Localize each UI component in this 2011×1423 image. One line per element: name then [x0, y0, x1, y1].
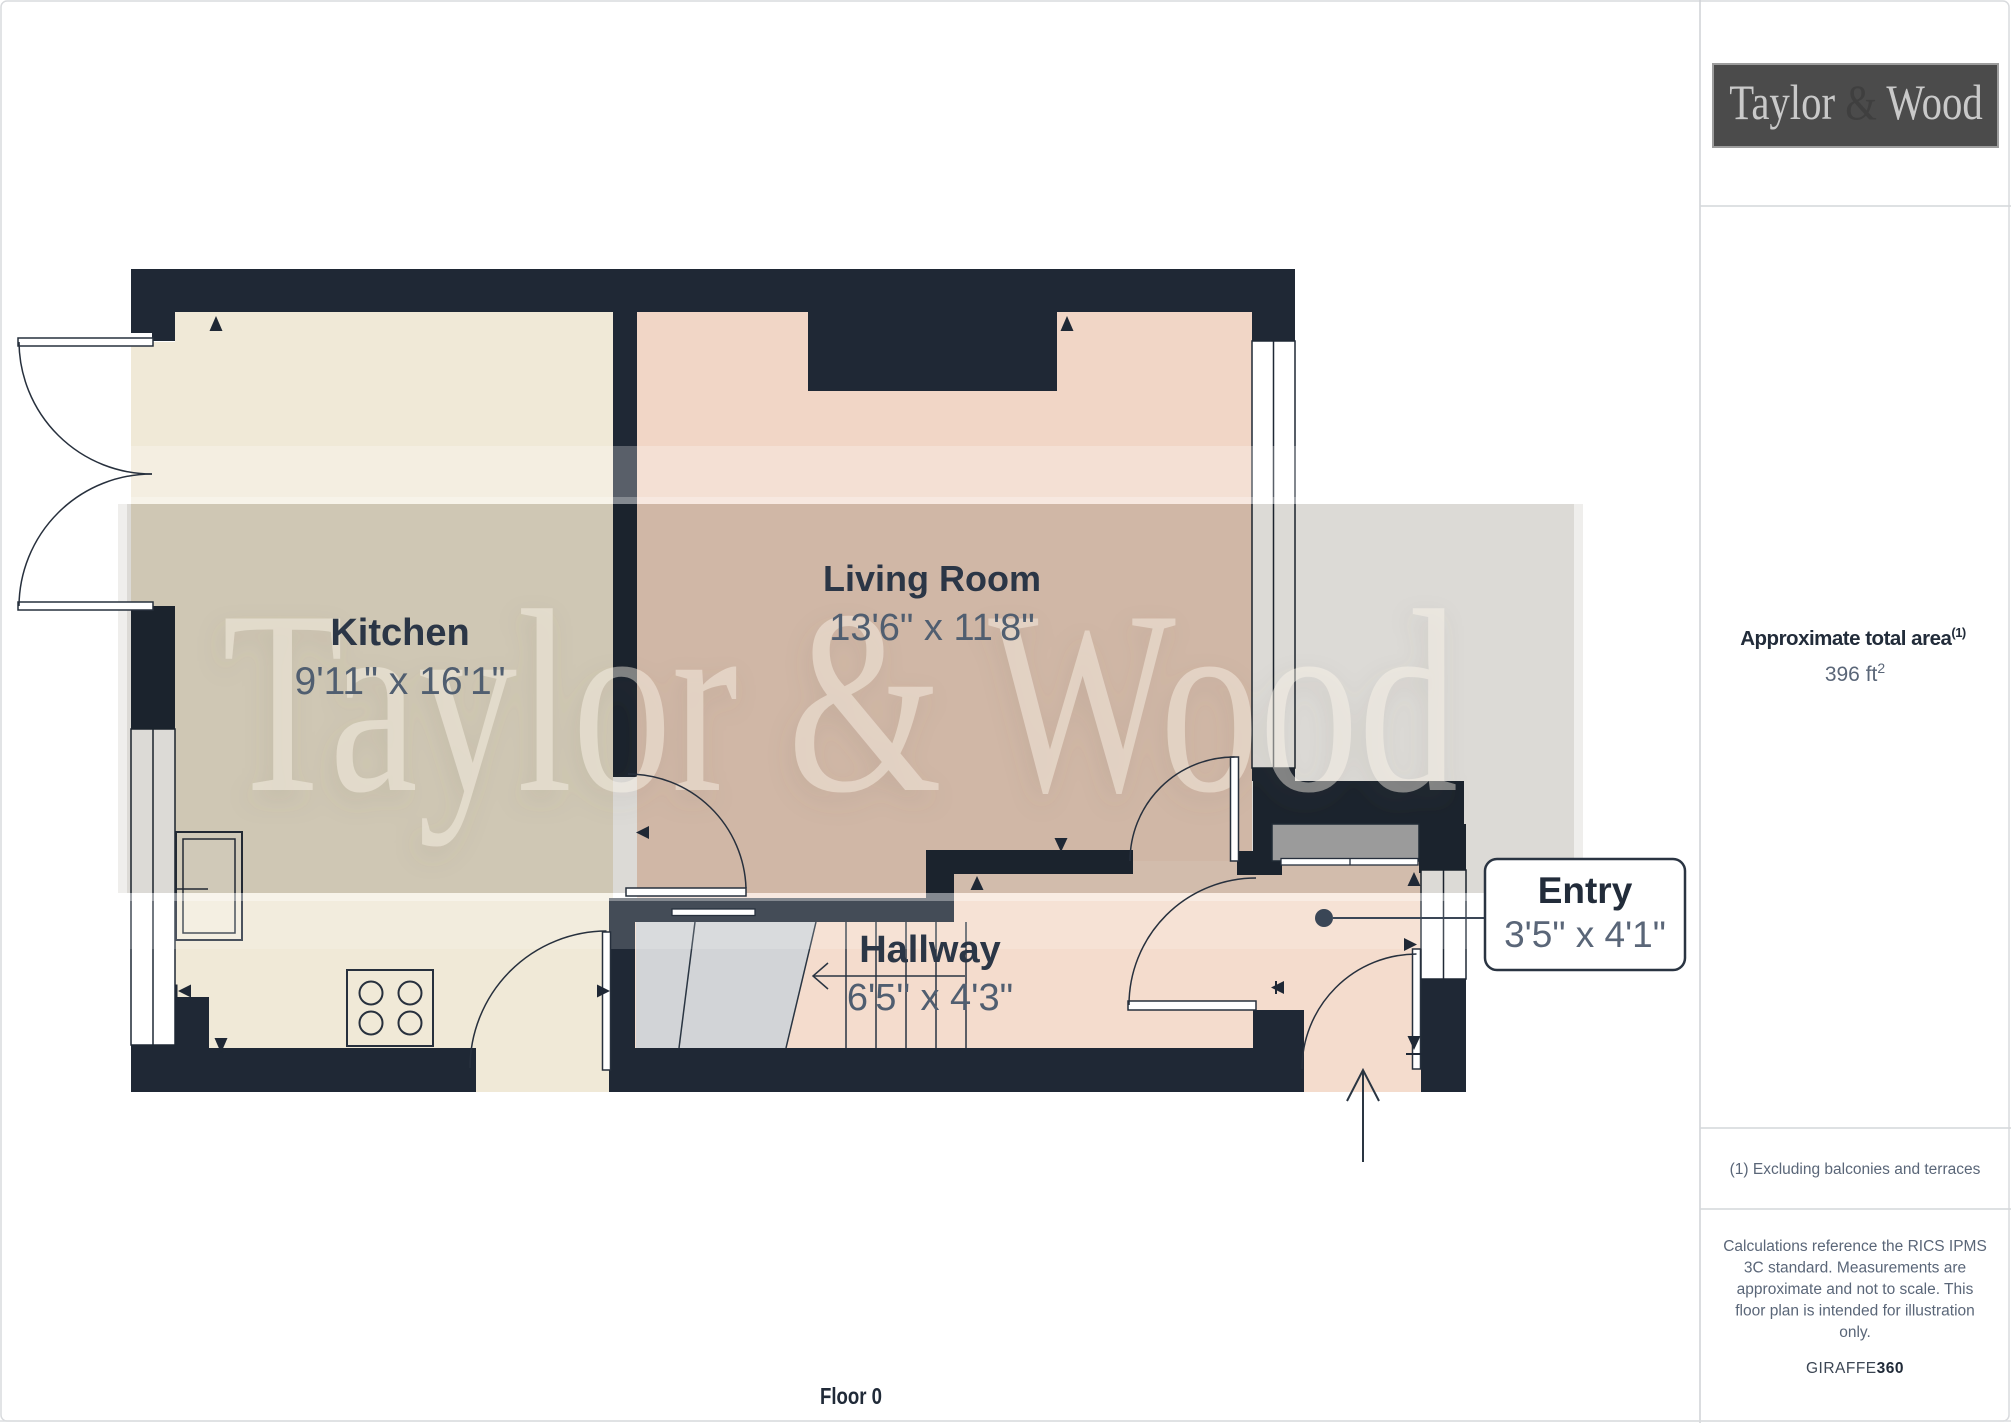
svg-text:Living Room: Living Room — [823, 558, 1041, 599]
svg-text:9'11" x 16'1": 9'11" x 16'1" — [295, 660, 506, 703]
svg-text:Hallway: Hallway — [859, 929, 1001, 971]
svg-text:floor plan is intended for ill: floor plan is intended for illustration — [1735, 1303, 1975, 1320]
svg-text:3C standard. Measurements are: 3C standard. Measurements are — [1744, 1260, 1966, 1277]
svg-text:Calculations reference the RIC: Calculations reference the RICS IPMS — [1723, 1238, 1987, 1255]
svg-text:Kitchen: Kitchen — [330, 612, 469, 654]
svg-text:3'5" x 4'1": 3'5" x 4'1" — [1504, 914, 1666, 955]
svg-text:396 ft2: 396 ft2 — [1825, 660, 1886, 686]
svg-text:13'6" x 11'8": 13'6" x 11'8" — [829, 607, 1035, 649]
svg-text:Entry: Entry — [1538, 870, 1633, 911]
svg-text:Taylor & Wood: Taylor & Wood — [1729, 74, 1983, 130]
svg-text:Floor 0: Floor 0 — [820, 1383, 882, 1409]
svg-text:GIRAFFE360: GIRAFFE360 — [1806, 1360, 1904, 1377]
svg-text:(1) Excluding balconies and te: (1) Excluding balconies and terraces — [1730, 1161, 1981, 1178]
svg-text:only.: only. — [1839, 1324, 1871, 1341]
svg-text:6'5" x 4'3": 6'5" x 4'3" — [847, 977, 1013, 1019]
svg-text:approximate and not to scale.: approximate and not to scale. This — [1737, 1281, 1974, 1298]
svg-text:Approximate total area(1): Approximate total area(1) — [1740, 625, 1966, 650]
